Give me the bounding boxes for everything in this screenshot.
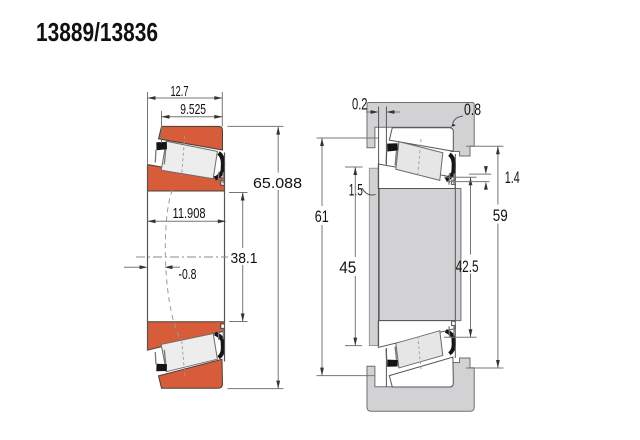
- svg-text:61: 61: [315, 207, 329, 226]
- svg-text:59: 59: [493, 206, 508, 225]
- svg-text:9.525: 9.525: [180, 101, 206, 118]
- svg-text:45: 45: [339, 258, 356, 277]
- svg-text:12.7: 12.7: [171, 83, 189, 100]
- svg-text:0.2: 0.2: [352, 95, 368, 114]
- svg-text:0.8: 0.8: [464, 100, 481, 119]
- svg-text:1.4: 1.4: [505, 168, 520, 187]
- svg-text:11.908: 11.908: [173, 205, 206, 222]
- svg-text:65.088: 65.088: [253, 175, 302, 192]
- svg-text:13889/13836: 13889/13836: [36, 17, 158, 47]
- svg-text:42.5: 42.5: [456, 257, 479, 276]
- svg-text:-0.8: -0.8: [179, 266, 197, 283]
- svg-text:38.1: 38.1: [231, 250, 258, 267]
